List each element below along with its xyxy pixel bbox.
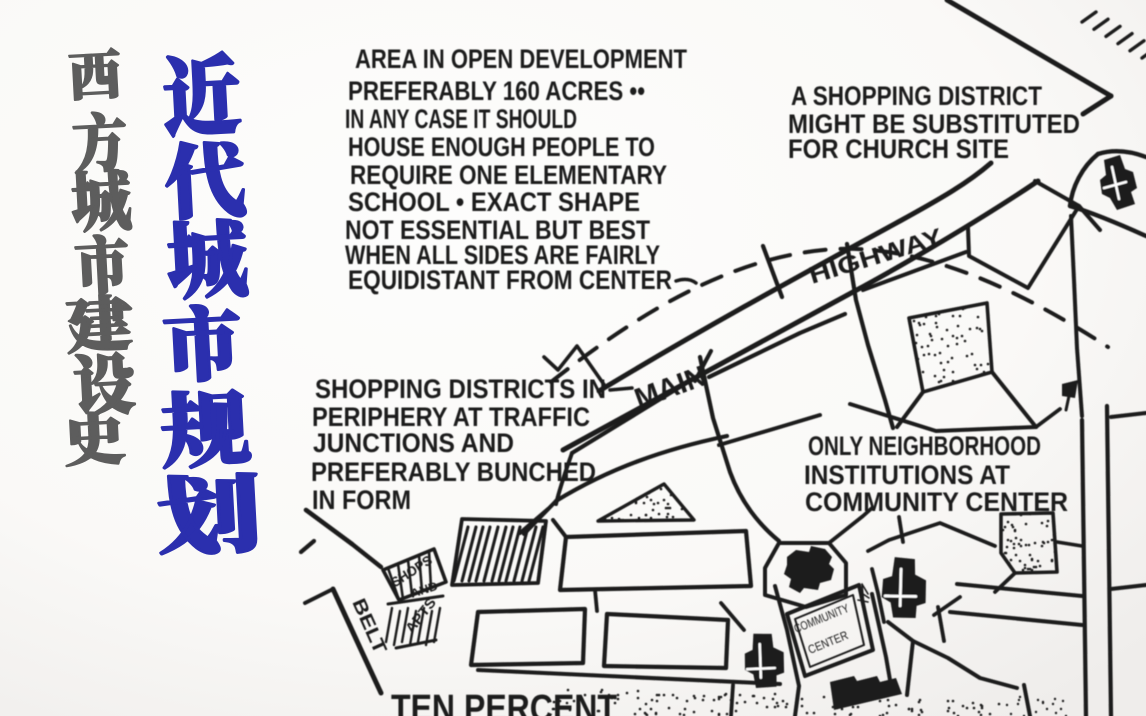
svg-text:SHOPPING DISTRICTS IN: SHOPPING DISTRICTS IN [315,374,606,404]
svg-text:JUNCTIONS AND: JUNCTIONS AND [313,428,514,458]
svg-text:FOR CHURCH SITE: FOR CHURCH SITE [788,134,1009,164]
svg-text:AREA IN OPEN DEVELOPMENT: AREA IN OPEN DEVELOPMENT [355,44,687,74]
svg-text:EQUIDISTANT FROM CENTER: EQUIDISTANT FROM CENTER [348,265,672,295]
svg-text:REQUIRE ONE ELEMENTARY: REQUIRE ONE ELEMENTARY [350,160,667,190]
svg-text:TEN PERCENT: TEN PERCENT [391,688,617,716]
svg-text:A SHOPPING DISTRICT: A SHOPPING DISTRICT [791,81,1042,111]
svg-text:IN FORM: IN FORM [312,485,411,515]
svg-text:PREFERABLY BUNCHED: PREFERABLY BUNCHED [311,457,596,487]
svg-text:IN ANY CASE IT SHOULD: IN ANY CASE IT SHOULD [345,104,577,134]
svg-text:PREFERABLY 160 ACRES ••: PREFERABLY 160 ACRES •• [348,76,645,106]
svg-text:ONLY NEIGHBORHOOD: ONLY NEIGHBORHOOD [808,431,1041,461]
svg-text:HOUSE ENOUGH PEOPLE TO: HOUSE ENOUGH PEOPLE TO [348,132,655,162]
svg-text:INSTITUTIONS AT: INSTITUTIONS AT [804,460,1010,490]
svg-text:SCHOOL • EXACT SHAPE: SCHOOL • EXACT SHAPE [348,187,640,217]
